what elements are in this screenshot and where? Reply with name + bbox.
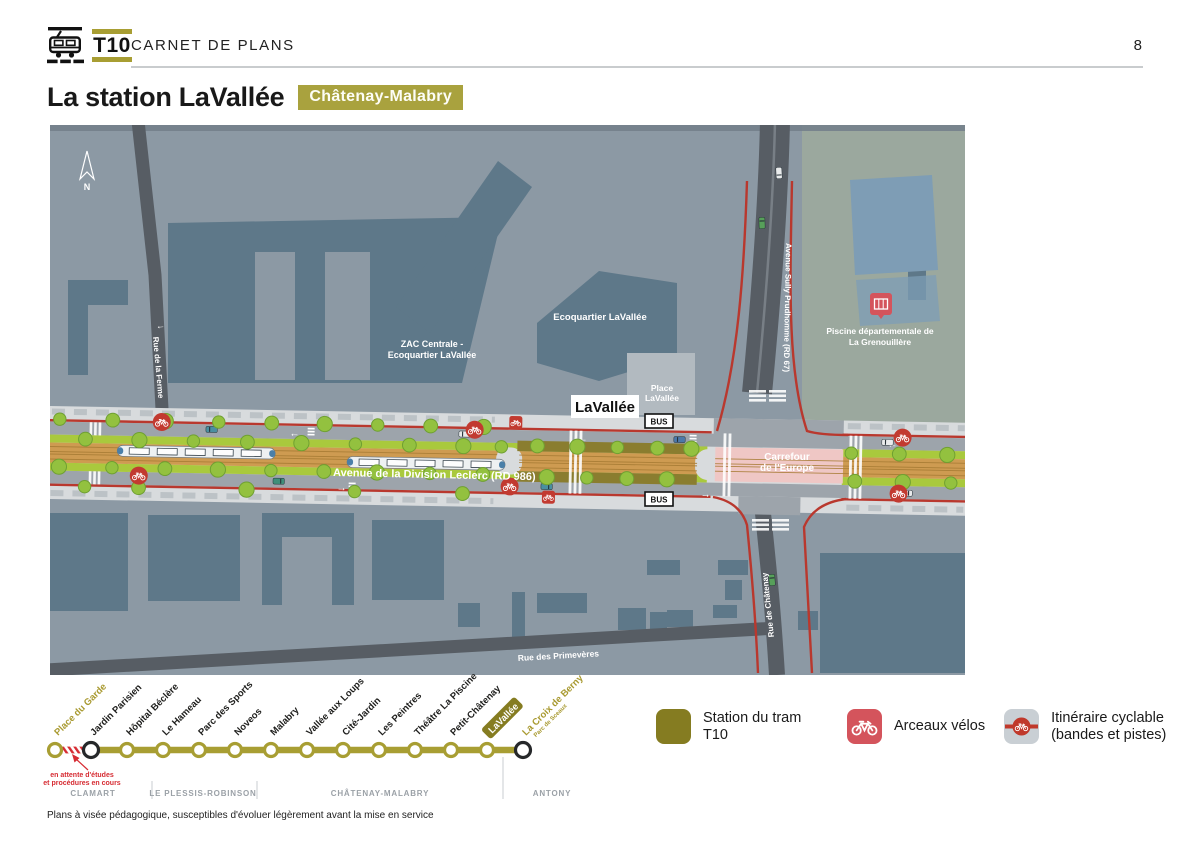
- tree-icon: [892, 447, 906, 461]
- tree-icon: [940, 447, 955, 462]
- diagram-station-dot: [157, 744, 170, 757]
- diagram-station-label: Malabry: [268, 704, 302, 738]
- svg-text:→: →: [700, 489, 710, 500]
- t10-logo: T10: [47, 27, 132, 64]
- footer-note: Plans à visée pédagogique, susceptibles …: [47, 810, 434, 821]
- ecoquartier-label: Ecoquartier LaVallée: [553, 312, 646, 323]
- line-badge: T10: [92, 29, 132, 62]
- header-rule: [131, 66, 1143, 68]
- tree-icon: [495, 440, 508, 453]
- document-title: CARNET DE PLANS: [131, 37, 295, 54]
- cycle-route-icon: [1003, 708, 1040, 745]
- diagram-station-dot: [516, 743, 531, 758]
- city-label-chatenay: CHÂTENAY-MALABRY: [331, 789, 429, 798]
- tree-icon: [317, 416, 332, 431]
- tree-icon: [132, 432, 147, 447]
- tree-icon: [371, 419, 384, 432]
- diagram-station-dot: [481, 744, 494, 757]
- bus-stop-south: BUS: [645, 492, 673, 506]
- tree-icon: [106, 413, 120, 427]
- diagram-station-dot: [373, 744, 386, 757]
- diagram-stations: Place du GardeJardin ParisienHôpital Béc…: [49, 671, 592, 758]
- station-name: LaVallée: [575, 399, 635, 416]
- svg-text:Malabry: Malabry: [268, 704, 302, 738]
- piscine-label-line2: La Grenouillère: [849, 337, 912, 347]
- pending-note-line2: et procédures en cours: [43, 780, 121, 787]
- legend-label: Itinéraire cyclable (bandes et pistes): [1051, 710, 1176, 743]
- tree-icon: [187, 435, 200, 448]
- tree-icon: [210, 462, 225, 477]
- tree-icon: [845, 447, 858, 460]
- diagram-station-dot: [193, 744, 206, 757]
- legend-label: Station du tram T10: [703, 710, 828, 743]
- line-name: T10: [93, 35, 131, 56]
- tree-icon: [848, 474, 862, 488]
- tree-icon: [265, 464, 278, 477]
- tree-icon: [348, 485, 361, 498]
- tree-icon: [349, 438, 362, 451]
- svg-text:La Croix de Berny: La Croix de Berny: [520, 672, 586, 738]
- line-diagram-svg: en attente d'études et procédures en cou…: [30, 685, 610, 810]
- tree-icon: [539, 469, 554, 484]
- tree-icon: [570, 439, 585, 454]
- page-title: La station LaVallée: [47, 82, 284, 113]
- olive-bar-bottom: [92, 57, 132, 62]
- tree-icon: [239, 482, 254, 497]
- diagram-station-dot: [265, 744, 278, 757]
- tree-icon: [53, 413, 66, 426]
- tree-icon: [78, 480, 91, 493]
- city-label-clamart: CLAMART: [70, 789, 115, 798]
- tree-icon: [650, 441, 664, 455]
- pending-note: en attente d'études et procédures en cou…: [43, 754, 121, 787]
- page-number: 8: [1112, 37, 1142, 54]
- tree-icon: [78, 432, 92, 446]
- bike-rack-icon: [509, 416, 522, 429]
- tree-icon: [240, 435, 254, 449]
- tree-icon: [944, 477, 957, 490]
- map-svg: ← ← ← → → →: [50, 125, 965, 675]
- place-label-line2: LaVallée: [645, 393, 679, 403]
- tree-icon: [51, 459, 66, 474]
- tram-station-square-icon: [655, 708, 692, 745]
- city-label-plessis: LE PLESSIS-ROBINSON: [149, 789, 256, 798]
- tree-icon: [402, 438, 416, 452]
- diagram-station-label: Noveos: [232, 706, 264, 738]
- diagram-station-dot: [121, 744, 134, 757]
- pending-note-line1: en attente d'études: [50, 772, 114, 779]
- title-row: La station LaVallée Châtenay-Malabry: [47, 82, 463, 113]
- diagram-station-dot: [229, 744, 242, 757]
- bike-rack-icon: [542, 491, 555, 504]
- piscine-label-line1: Piscine départementale de: [826, 326, 934, 336]
- diagram-station-dot: [337, 744, 350, 757]
- zac-label-line1: ZAC Centrale -: [401, 339, 464, 349]
- place-label-line1: Place: [651, 383, 673, 393]
- tree-icon: [620, 472, 634, 486]
- legend-item-cycle-route: Itinéraire cyclable (bandes et pistes): [1003, 708, 1176, 745]
- zac-label-line2: Ecoquartier LaVallée: [388, 350, 477, 360]
- carrefour-label-line2: de l'Europe: [760, 463, 814, 474]
- legend-label: Arceaux vélos: [894, 718, 985, 735]
- svg-text:Noveos: Noveos: [232, 706, 264, 738]
- tree-icon: [659, 472, 674, 487]
- diagram-station-label: La Croix de BernyParc de Sceaux: [520, 672, 591, 743]
- svg-text:→: →: [336, 483, 346, 494]
- city-badge: Châtenay-Malabry: [298, 85, 463, 110]
- tree-icon: [106, 461, 119, 474]
- bus-stop-label: BUS: [651, 496, 669, 505]
- tree-icon: [294, 435, 309, 450]
- tree-icon: [455, 487, 469, 501]
- tree-icon: [530, 439, 544, 453]
- plan-page: T10 CARNET DE PLANS 8 La station LaVallé…: [0, 0, 1191, 842]
- map-legend: Station du tram T10 Arceaux vélos Itinér…: [655, 708, 1176, 745]
- diagram-station-dot: [409, 744, 422, 757]
- diagram-station-dot: [84, 743, 99, 758]
- bus-stop-label: BUS: [651, 418, 669, 427]
- tree-icon: [580, 472, 593, 485]
- legend-item-station: Station du tram T10: [655, 708, 828, 745]
- bus-stop-north: BUS: [645, 414, 673, 428]
- tree-icon: [611, 441, 624, 454]
- station-map: ← ← ← → → →: [50, 125, 965, 675]
- tree-icon: [158, 462, 172, 476]
- city-label-antony: ANTONY: [533, 789, 571, 798]
- station-name-box: LaVallée: [571, 395, 639, 418]
- svg-text:↓: ↓: [156, 324, 166, 329]
- diagram-station-dot: [301, 744, 314, 757]
- tree-icon: [212, 416, 225, 429]
- svg-text:Théâtre La Piscine: Théâtre La Piscine: [412, 671, 479, 738]
- diagram-station-label: Théâtre La Piscine: [412, 671, 479, 738]
- line-diagram: en attente d'études et procédures en cou…: [30, 685, 610, 810]
- diagram-station-dot: [445, 744, 458, 757]
- pool-basins: [850, 175, 940, 326]
- carrefour-label-line1: Carrefour: [764, 452, 810, 463]
- tram-icon: [47, 27, 85, 64]
- pool-grounds-zone: [802, 125, 965, 428]
- bike-rack-icon: [846, 708, 883, 745]
- diagram-station-dot: [49, 744, 62, 757]
- tree-icon: [317, 465, 331, 479]
- tree-icon: [265, 416, 279, 430]
- legend-item-bike-rack: Arceaux vélos: [846, 708, 985, 745]
- north-label: N: [84, 182, 91, 192]
- tree-icon: [424, 419, 438, 433]
- svg-text:LaVallée: LaVallée: [486, 701, 521, 736]
- tram-corridor: ← ← ← → → →: [50, 406, 965, 519]
- tree-icon: [456, 438, 471, 453]
- tree-icon: [684, 441, 699, 456]
